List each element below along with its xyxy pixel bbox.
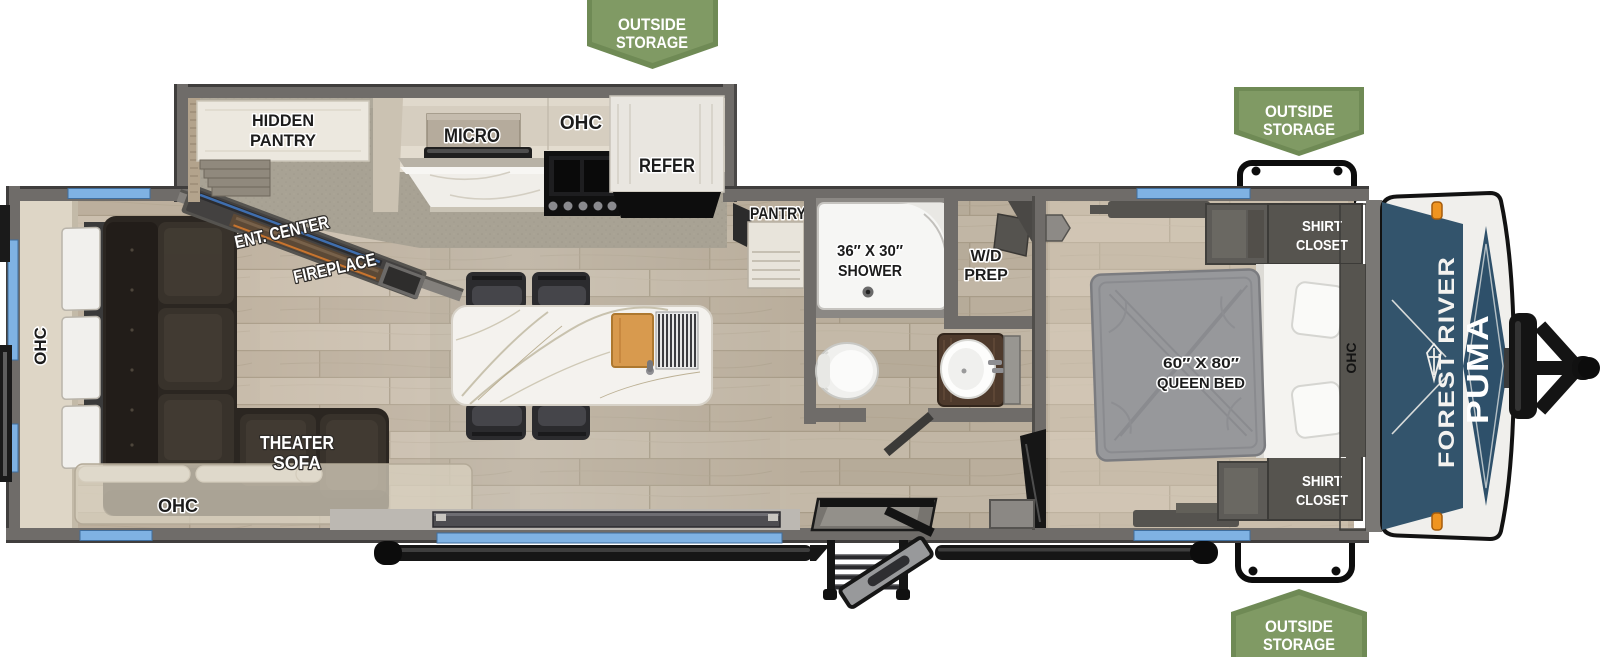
svg-text:OHC: OHC bbox=[560, 113, 603, 134]
svg-text:W/D: W/D bbox=[970, 248, 1001, 265]
svg-text:THEATER: THEATER bbox=[260, 433, 334, 453]
svg-text:MICRO: MICRO bbox=[444, 126, 500, 147]
svg-text:OUTSIDE: OUTSIDE bbox=[1265, 102, 1333, 121]
svg-text:PANTRY: PANTRY bbox=[250, 131, 317, 150]
svg-text:REFER: REFER bbox=[639, 156, 695, 177]
svg-text:OUTSIDE: OUTSIDE bbox=[1265, 617, 1333, 636]
svg-text:HIDDEN: HIDDEN bbox=[252, 111, 314, 130]
svg-text:OHC: OHC bbox=[158, 496, 198, 516]
svg-text:PREP: PREP bbox=[964, 267, 1008, 284]
svg-text:QUEEN BED: QUEEN BED bbox=[1157, 375, 1245, 392]
svg-text:STORAGE: STORAGE bbox=[1263, 635, 1335, 654]
svg-text:PANTRY: PANTRY bbox=[750, 204, 807, 223]
svg-text:STORAGE: STORAGE bbox=[616, 33, 688, 52]
svg-text:OUTSIDE: OUTSIDE bbox=[618, 15, 686, 34]
svg-text:SHIRT: SHIRT bbox=[1302, 473, 1342, 490]
svg-text:FOREST RIVER: FOREST RIVER bbox=[1434, 256, 1459, 468]
svg-text:SHOWER: SHOWER bbox=[838, 263, 902, 280]
svg-text:OHC: OHC bbox=[1343, 342, 1359, 373]
svg-text:PUMA: PUMA bbox=[1460, 314, 1495, 424]
svg-text:60″ X 80″: 60″ X 80″ bbox=[1163, 355, 1239, 372]
svg-text:OHC: OHC bbox=[31, 327, 50, 365]
svg-text:36″ X 30″: 36″ X 30″ bbox=[837, 243, 903, 260]
svg-text:SOFA: SOFA bbox=[273, 453, 321, 473]
svg-text:SHIRT: SHIRT bbox=[1302, 218, 1342, 235]
svg-text:STORAGE: STORAGE bbox=[1263, 120, 1335, 139]
